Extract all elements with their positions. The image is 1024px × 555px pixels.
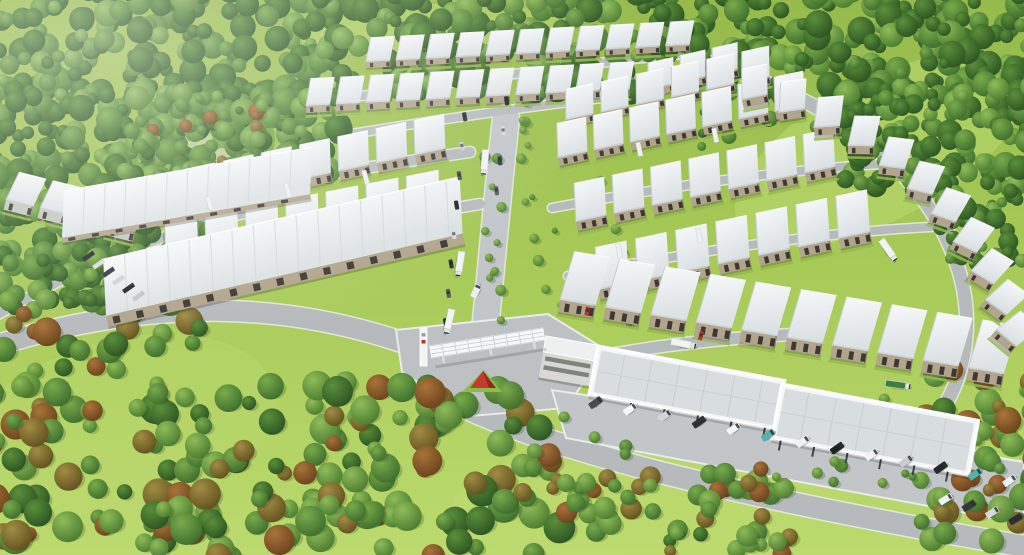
office-building (538, 336, 597, 389)
aerial-industrial-park-render (0, 0, 1024, 555)
entrance-pylon (420, 328, 427, 366)
industrial-park-scene (0, 0, 1024, 555)
